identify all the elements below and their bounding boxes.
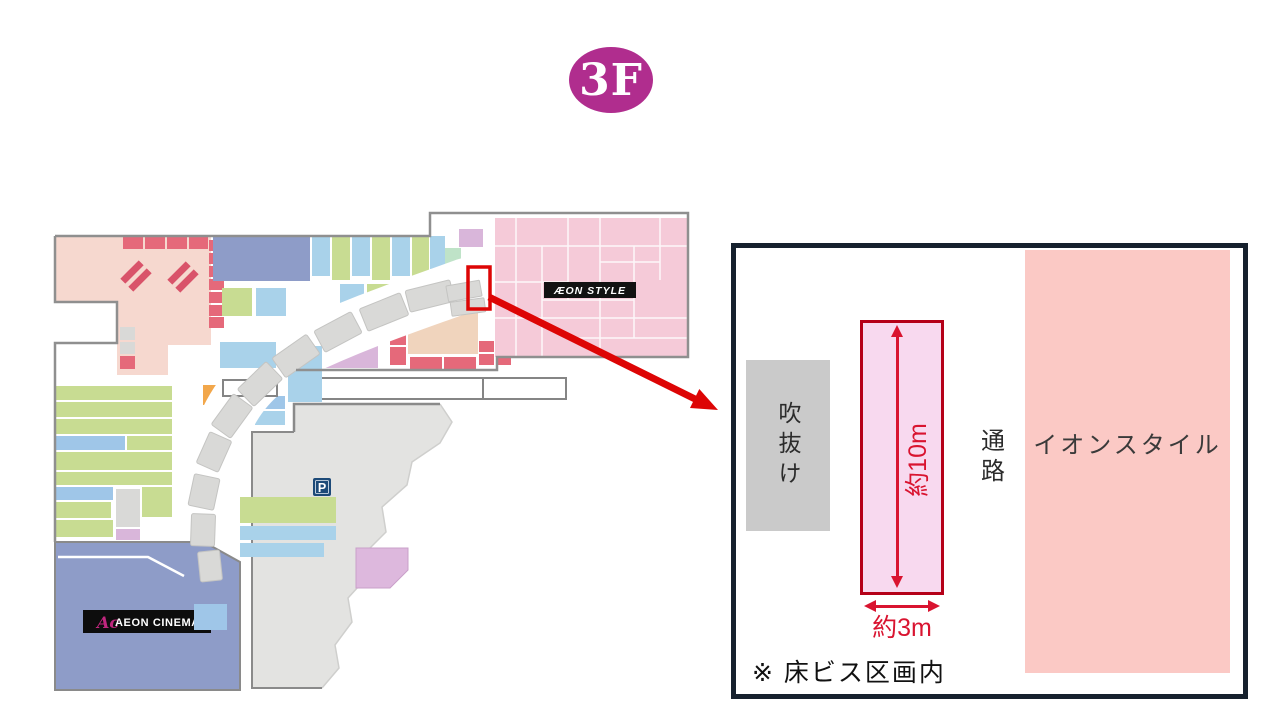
corridor-label: 通路 <box>973 428 1008 488</box>
arrow-up-icon <box>891 325 903 337</box>
floor-badge: 3F <box>569 47 653 113</box>
aeon-style-area: ÆON STYLE <box>495 218 688 357</box>
store-block: イオンスタイル <box>1025 250 1230 673</box>
panel-note: ※ 床ビス区画内 <box>752 653 946 689</box>
aeon-style-label: ÆON STYLE <box>553 285 626 297</box>
atrium-block: 吹抜け <box>746 360 830 531</box>
depth-dimension: 約10m <box>898 423 934 497</box>
parking-label: P <box>318 481 326 495</box>
arrow-down-icon <box>891 576 903 588</box>
store-label: イオンスタイル <box>1033 425 1222 460</box>
detail-panel: 吹抜け 約10m 通路 イオンスタイル 約3m ※ 床ビス区画内 <box>731 243 1248 699</box>
slide: ÆON STYLE P Ac AEON CINEMA <box>0 0 1280 720</box>
aeon-cinema-label: AEON CINEMA <box>115 617 200 629</box>
atrium-label: 吹抜け <box>771 401 805 491</box>
floor-badge-label: 3F <box>579 55 643 106</box>
annotation-arrowhead <box>690 389 718 410</box>
width-dimension: 約3m <box>872 608 932 644</box>
parking-structure <box>356 548 408 588</box>
